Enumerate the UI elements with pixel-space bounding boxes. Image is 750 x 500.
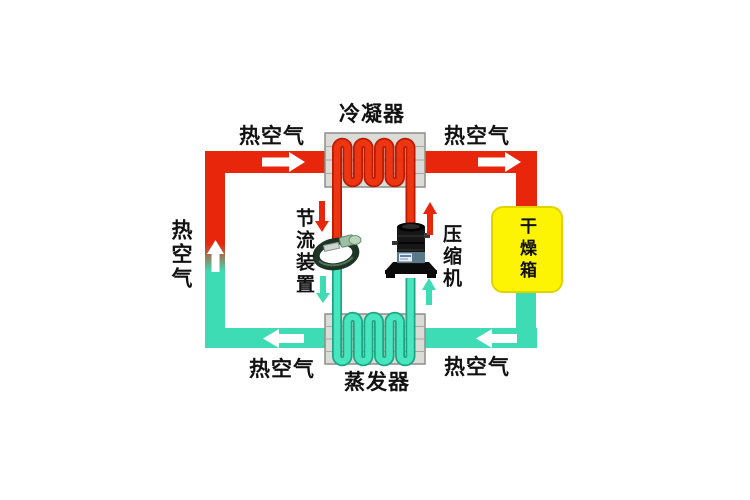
cold-arrow-up-icon — [422, 278, 436, 305]
cold-arrow-down-icon — [316, 276, 330, 303]
hot-air-label-left: 热空气 — [170, 219, 191, 291]
hot-arrow-up-icon — [423, 202, 437, 235]
throttle-device-icon — [314, 234, 361, 269]
condenser-label: 冷凝器 — [339, 104, 405, 125]
drying-box-label: 干燥箱 — [518, 217, 535, 283]
hot-air-label-top-left: 热空气 — [239, 126, 305, 147]
schematic-graphics — [0, 0, 750, 500]
evaporator-label: 蒸发器 — [344, 372, 410, 393]
hot-air-label-bottom-left: 热空气 — [249, 359, 315, 380]
hot-air-label-top-right: 热空气 — [444, 126, 510, 147]
diagram-canvas: 冷凝器 热空气 热空气 热空气 节流装置 压缩机 干燥箱 蒸发器 热空气 热空气 — [0, 0, 750, 500]
compressor-label: 压缩机 — [441, 224, 460, 290]
hot-air-label-bottom-right: 热空气 — [444, 357, 510, 378]
air-pipe-right-hot — [516, 151, 537, 215]
hot-arrow-down-icon — [315, 201, 329, 232]
throttle-device-label: 节流装置 — [294, 208, 313, 296]
